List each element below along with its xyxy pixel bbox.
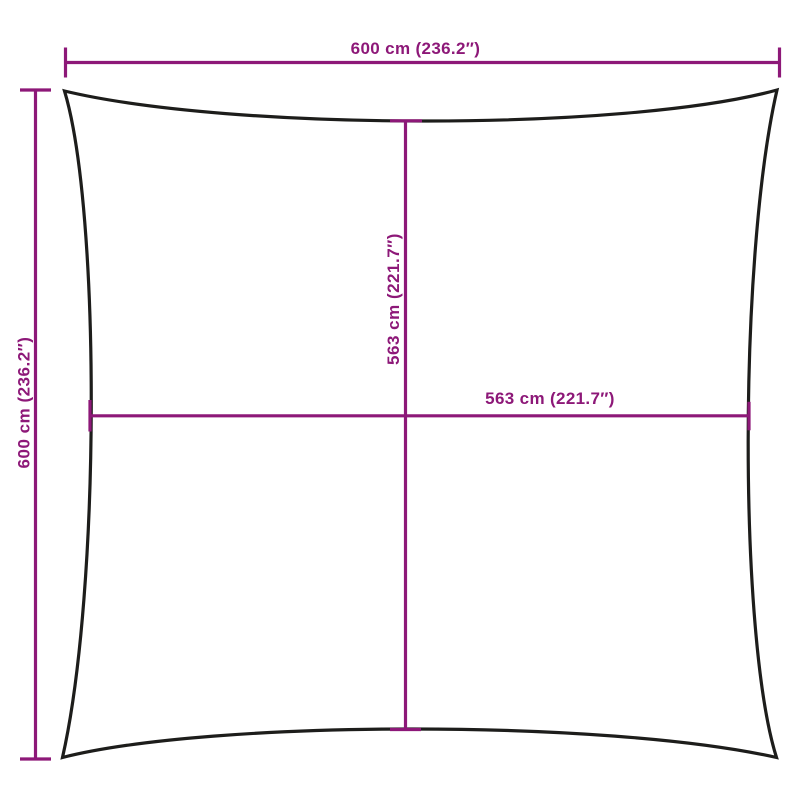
svg-text:563 cm (221.7″): 563 cm (221.7″): [485, 389, 615, 408]
svg-text:563 cm (221.7″): 563 cm (221.7″): [384, 233, 403, 365]
svg-text:600 cm (236.2″): 600 cm (236.2″): [351, 39, 481, 58]
svg-text:600 cm (236.2″): 600 cm (236.2″): [15, 337, 34, 469]
